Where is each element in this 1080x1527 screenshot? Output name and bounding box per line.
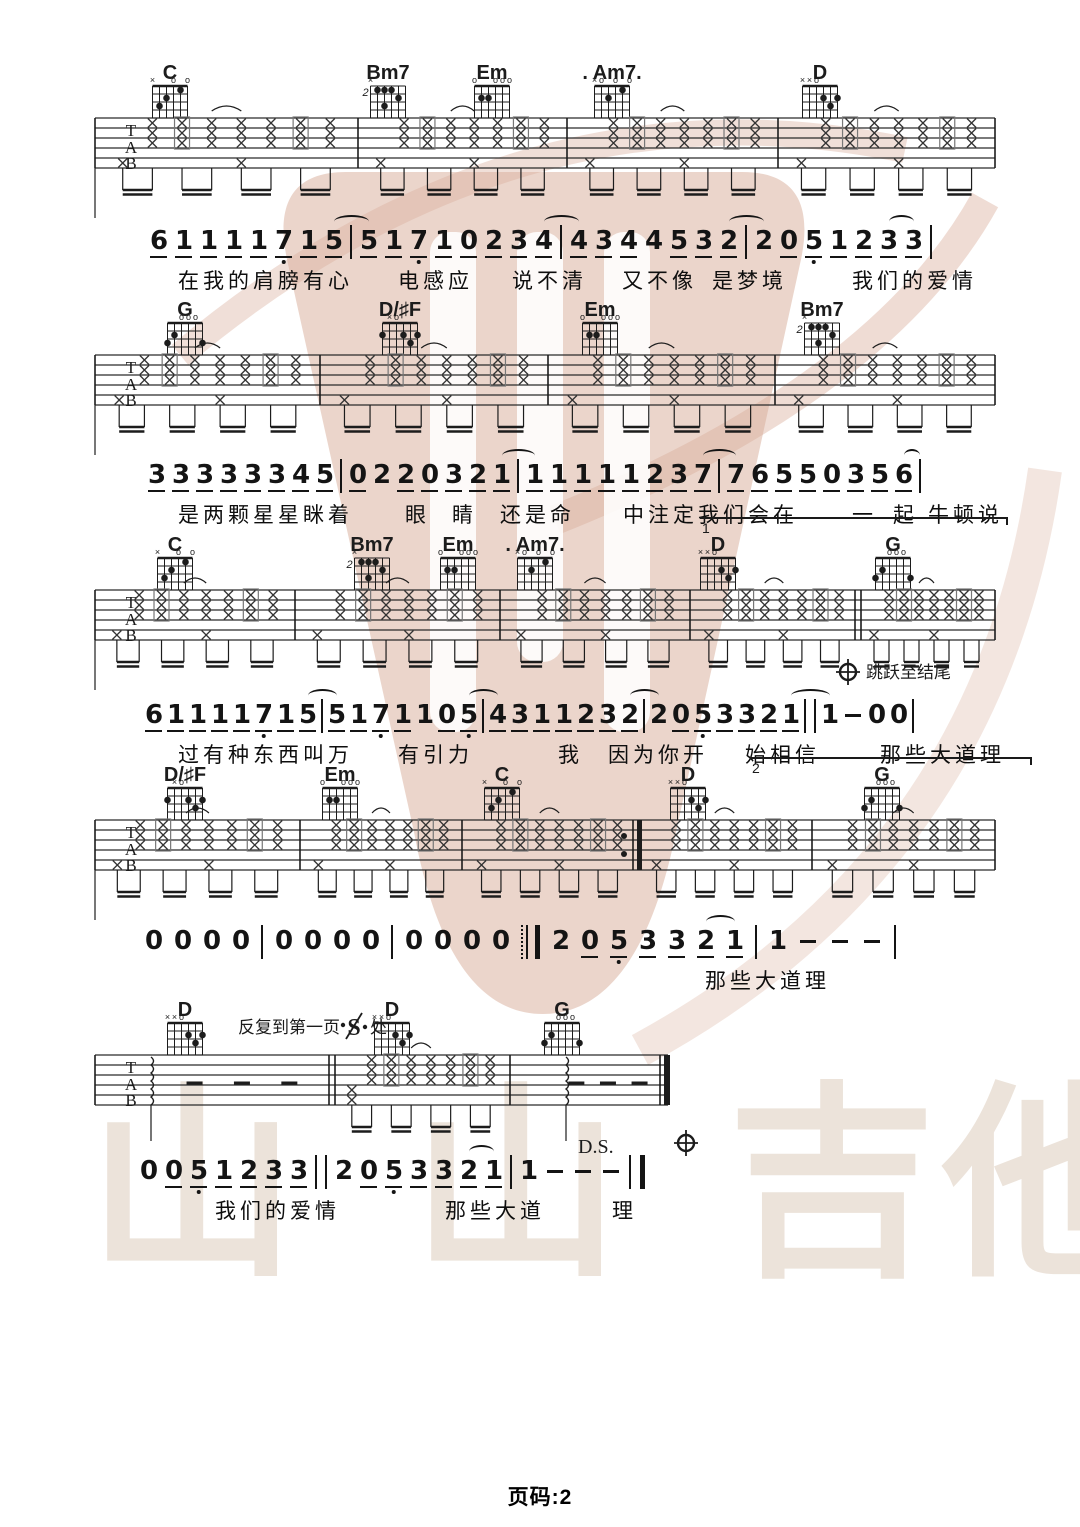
jianpu-barline bbox=[894, 925, 896, 959]
jianpu-note: 1 bbox=[215, 1158, 232, 1188]
jianpu-note: 1 bbox=[300, 228, 317, 258]
svg-text:o: o bbox=[814, 75, 819, 85]
svg-text:o: o bbox=[517, 777, 522, 787]
jianpu-note: 1 bbox=[435, 228, 452, 258]
svg-text:×: × bbox=[172, 1012, 177, 1022]
svg-text:o: o bbox=[438, 547, 443, 557]
jianpu-barline bbox=[745, 225, 747, 259]
svg-text:o: o bbox=[185, 75, 190, 85]
tie-arc bbox=[334, 215, 369, 228]
jianpu-line: 00000000000020533211 bbox=[145, 928, 908, 959]
jianpu-note: 2 bbox=[755, 228, 772, 254]
jianpu-note: 6 bbox=[751, 462, 768, 492]
jianpu-note: 1 bbox=[485, 1158, 502, 1188]
lyrics-segment: 牛顿说 bbox=[928, 499, 1003, 529]
tie-arc bbox=[889, 215, 914, 228]
jianpu-note: 1 bbox=[225, 228, 242, 258]
jianpu-barline bbox=[912, 699, 914, 733]
jianpu-barline bbox=[560, 225, 562, 259]
jianpu-note: 3 bbox=[716, 702, 733, 732]
jianpu-note: 3 bbox=[196, 462, 213, 492]
svg-text:o: o bbox=[348, 777, 353, 787]
jianpu-final-barline bbox=[629, 1155, 645, 1189]
jianpu-dash bbox=[798, 928, 818, 954]
jianpu-note: 7 bbox=[694, 462, 711, 492]
jianpu-note: 2 bbox=[760, 702, 777, 732]
jianpu-barline bbox=[482, 699, 484, 733]
jianpu-note: 0 bbox=[232, 928, 249, 954]
jianpu-note: 0 bbox=[362, 928, 379, 954]
svg-text:o: o bbox=[876, 777, 881, 787]
jianpu-barline bbox=[718, 459, 720, 493]
jianpu-note: 5 bbox=[325, 228, 342, 258]
jianpu-note: 4 bbox=[292, 462, 309, 492]
svg-text:o: o bbox=[522, 547, 527, 557]
svg-text:o: o bbox=[682, 777, 687, 787]
lyrics-segment: 起 bbox=[893, 499, 918, 529]
svg-text:×: × bbox=[150, 75, 155, 85]
jianpu-note: 4 bbox=[489, 702, 506, 732]
jianpu-note: 2 bbox=[650, 702, 667, 728]
jianpu-note: 0 bbox=[868, 702, 885, 728]
jianpu-barline bbox=[340, 459, 342, 493]
svg-text:o: o bbox=[563, 1012, 568, 1022]
tie-arc bbox=[544, 215, 579, 228]
jianpu-note: 5 bbox=[460, 702, 477, 732]
jianpu-note: 0 bbox=[780, 228, 797, 258]
lyrics-segment: 中注定我们会在 bbox=[623, 499, 798, 529]
lyrics-segment: 那些大道理 bbox=[880, 739, 1005, 769]
jianpu-note: 3 bbox=[410, 1158, 427, 1188]
jianpu-note: 0 bbox=[823, 462, 840, 492]
jianpu-note: 3 bbox=[435, 1158, 452, 1188]
lyrics-segment: 是两颗星星眯着 bbox=[178, 499, 353, 529]
jianpu-barline bbox=[930, 225, 932, 259]
lyrics-segment: 我 bbox=[558, 739, 583, 769]
svg-text:o: o bbox=[570, 1012, 575, 1022]
lyrics-segment: 我们的爱情 bbox=[852, 265, 977, 295]
svg-text:o: o bbox=[901, 547, 906, 557]
jianpu-note: 3 bbox=[668, 928, 685, 958]
svg-text:×: × bbox=[705, 547, 710, 557]
jianpu-note: 6 bbox=[150, 228, 167, 258]
jianpu-note: 5 bbox=[360, 228, 377, 258]
jianpu-barline bbox=[261, 925, 263, 959]
tie-arc bbox=[904, 449, 921, 462]
svg-text:B: B bbox=[125, 626, 136, 645]
jianpu-line: 61111715517110543112322053321100 bbox=[145, 702, 919, 733]
jianpu-note: 2 bbox=[240, 1158, 257, 1188]
svg-text:o: o bbox=[320, 777, 325, 787]
svg-text:×: × bbox=[155, 547, 160, 557]
jianpu-note: 5 bbox=[328, 702, 345, 732]
tie-arc bbox=[791, 689, 830, 702]
tie-arc bbox=[308, 689, 337, 702]
jianpu-note: 2 bbox=[621, 702, 638, 732]
jianpu-note: 0 bbox=[492, 928, 509, 954]
jianpu-note: 7 bbox=[372, 702, 389, 732]
jianpu-dash bbox=[545, 1158, 565, 1184]
jianpu-note: 0 bbox=[174, 928, 191, 954]
svg-text:×: × bbox=[352, 547, 357, 557]
jianpu-note: 0 bbox=[438, 702, 455, 732]
svg-text:×: × bbox=[592, 75, 597, 85]
lyrics-segment: 那些大道理 bbox=[705, 965, 830, 995]
jianpu-note: 3 bbox=[148, 462, 165, 492]
jianpu-note: 0 bbox=[581, 928, 598, 958]
jianpu-note: 1 bbox=[493, 462, 510, 492]
jianpu-note: 2 bbox=[485, 228, 502, 258]
lyrics-segment: 眼 bbox=[405, 499, 430, 529]
svg-text:B: B bbox=[125, 391, 136, 410]
sheet-music-page: { "page": { "footer": "页码:2" }, "waterma… bbox=[0, 0, 1080, 1527]
lyrics-segment: 一 bbox=[852, 499, 877, 529]
jianpu-note: 3 bbox=[670, 462, 687, 492]
jianpu-barline bbox=[517, 459, 519, 493]
svg-text:o: o bbox=[627, 75, 632, 85]
jianpu-barline bbox=[391, 925, 393, 959]
svg-text:o: o bbox=[176, 547, 181, 557]
page-number: 页码:2 bbox=[0, 1481, 1080, 1511]
svg-text:o: o bbox=[608, 312, 613, 322]
jianpu-note: 3 bbox=[510, 228, 527, 258]
jianpu-note: 2 bbox=[335, 1158, 352, 1184]
svg-text:×: × bbox=[698, 547, 703, 557]
jianpu-note: 3 bbox=[905, 228, 922, 258]
jianpu-note: 1 bbox=[598, 462, 615, 492]
tie-arc bbox=[630, 689, 659, 702]
svg-text:×: × bbox=[802, 312, 807, 322]
jianpu-note: 1 bbox=[555, 702, 572, 732]
tie-arc bbox=[706, 915, 735, 928]
svg-text:×: × bbox=[165, 1012, 170, 1022]
jianpu-line: 611117155171023443445322051233 bbox=[150, 228, 940, 259]
svg-text:o: o bbox=[883, 777, 888, 787]
lyrics-segment: 那些大道 bbox=[445, 1195, 545, 1225]
jianpu-barline bbox=[643, 699, 645, 733]
svg-text:o: o bbox=[500, 75, 505, 85]
jianpu-note: 1 bbox=[526, 462, 543, 492]
jianpu-note: 0 bbox=[890, 702, 907, 728]
svg-text:反复到第一页: 反复到第一页 bbox=[238, 1018, 340, 1037]
lyrics-segment: 因为你开 bbox=[608, 739, 708, 769]
svg-text:o: o bbox=[193, 312, 198, 322]
lyrics-segment: 是梦境 bbox=[712, 265, 787, 295]
svg-text:o: o bbox=[179, 312, 184, 322]
lyrics-segment: 理 bbox=[612, 1195, 637, 1225]
svg-text:×: × bbox=[675, 777, 680, 787]
svg-text:o: o bbox=[894, 547, 899, 557]
svg-text:o: o bbox=[615, 312, 620, 322]
jianpu-note: 0 bbox=[421, 462, 438, 492]
jianpu-note: 5 bbox=[610, 928, 627, 958]
jianpu-note: 1 bbox=[830, 228, 847, 258]
lyrics-segment: 还是命 bbox=[500, 499, 575, 529]
jianpu-dash bbox=[573, 1158, 593, 1184]
svg-text:o: o bbox=[466, 547, 471, 557]
jianpu-note: 2 bbox=[646, 462, 663, 492]
tie-arc bbox=[469, 689, 498, 702]
jianpu-note: 3 bbox=[599, 702, 616, 732]
svg-text:o: o bbox=[341, 777, 346, 787]
svg-text:o: o bbox=[580, 312, 585, 322]
jianpu-note: 0 bbox=[360, 1158, 377, 1188]
jianpu-dash bbox=[601, 1158, 621, 1184]
jianpu-note: 1 bbox=[726, 928, 743, 958]
jianpu-note: 1 bbox=[416, 702, 433, 728]
jianpu-note: 1 bbox=[350, 702, 367, 732]
jianpu-note: 3 bbox=[595, 228, 612, 258]
jianpu-note: 5 bbox=[190, 1158, 207, 1188]
jianpu-note: 1 bbox=[533, 702, 550, 732]
svg-text:×: × bbox=[515, 547, 520, 557]
svg-text:o: o bbox=[712, 547, 717, 557]
jianpu-note: 0 bbox=[140, 1158, 157, 1184]
jianpu-note: 6 bbox=[145, 702, 162, 732]
jianpu-note: 5 bbox=[694, 702, 711, 732]
jianpu-note: 5 bbox=[316, 462, 333, 492]
svg-text:×: × bbox=[368, 75, 373, 85]
jianpu-dash bbox=[843, 702, 863, 728]
svg-text:o: o bbox=[179, 777, 184, 787]
jianpu-note: 4 bbox=[570, 228, 587, 258]
svg-text:o: o bbox=[890, 777, 895, 787]
svg-text:D.S.: D.S. bbox=[578, 1136, 614, 1158]
tie-arc bbox=[502, 449, 535, 462]
jianpu-note: 5 bbox=[799, 462, 816, 492]
jianpu-note: 3 bbox=[268, 462, 285, 492]
svg-text:o: o bbox=[550, 547, 555, 557]
jianpu-note: 7 bbox=[410, 228, 427, 258]
jianpu-note: 5 bbox=[871, 462, 888, 492]
svg-text:×: × bbox=[800, 75, 805, 85]
lyrics-segment: 又不像 bbox=[622, 265, 697, 295]
jianpu-note: 2 bbox=[373, 462, 390, 488]
jianpu-note: 0 bbox=[165, 1158, 182, 1188]
jianpu-note: 0 bbox=[275, 928, 292, 954]
jianpu-note: 1 bbox=[175, 228, 192, 258]
svg-text:跳跃至结尾: 跳跃至结尾 bbox=[866, 663, 951, 682]
jianpu-note: 3 bbox=[639, 928, 656, 958]
svg-text:o: o bbox=[394, 312, 399, 322]
jianpu-repeat-barline bbox=[521, 925, 540, 959]
jianpu-note: 3 bbox=[220, 462, 237, 492]
jianpu-note: 1 bbox=[200, 228, 217, 258]
svg-text:o: o bbox=[503, 777, 508, 787]
jianpu-note: 1 bbox=[550, 462, 567, 492]
svg-text:×: × bbox=[807, 75, 812, 85]
jianpu-note: 0 bbox=[460, 228, 477, 258]
jianpu-note: 0 bbox=[405, 928, 422, 954]
jianpu-note: 0 bbox=[145, 928, 162, 954]
jianpu-note: 1 bbox=[250, 228, 267, 258]
jianpu-note: 5 bbox=[385, 1158, 402, 1188]
jianpu-note: 2 bbox=[460, 1158, 477, 1188]
jianpu-note: 0 bbox=[304, 928, 321, 954]
jianpu-note: 2 bbox=[720, 228, 737, 258]
jianpu-note: 1 bbox=[821, 702, 838, 728]
jianpu-note: 0 bbox=[333, 928, 350, 954]
jianpu-note: 5 bbox=[775, 462, 792, 492]
svg-text:B: B bbox=[125, 1091, 136, 1110]
jianpu-note: 3 bbox=[244, 462, 261, 492]
jianpu-note: 0 bbox=[434, 928, 451, 954]
jianpu-note: 2 bbox=[397, 462, 414, 492]
jianpu-barline bbox=[510, 1155, 512, 1189]
svg-text:B: B bbox=[125, 154, 136, 173]
jianpu-note: 4 bbox=[535, 228, 552, 258]
svg-text:×: × bbox=[668, 777, 673, 787]
jianpu-note: 7 bbox=[255, 702, 272, 732]
jianpu-note: 3 bbox=[290, 1158, 307, 1188]
jianpu-note: 3 bbox=[511, 702, 528, 732]
jianpu-note: 3 bbox=[695, 228, 712, 258]
jianpu-barline bbox=[350, 225, 352, 259]
jianpu-note: 5 bbox=[805, 228, 822, 258]
jianpu-note: 5 bbox=[670, 228, 687, 258]
jianpu-note: 3 bbox=[445, 462, 462, 492]
jianpu-dash bbox=[862, 928, 882, 954]
svg-text:处: 处 bbox=[370, 1018, 387, 1037]
svg-text:o: o bbox=[493, 75, 498, 85]
lyrics-segment: 过有种东西叫万 bbox=[178, 739, 353, 769]
svg-text:2: 2 bbox=[346, 559, 353, 571]
lyrics-segment: 睛 bbox=[452, 499, 477, 529]
jianpu-note: 2 bbox=[552, 928, 569, 954]
svg-text:o: o bbox=[507, 75, 512, 85]
svg-text:D/♯F: D/♯F bbox=[379, 299, 421, 321]
jianpu-note: 1 bbox=[520, 1158, 537, 1184]
jianpu-note: 3 bbox=[880, 228, 897, 258]
svg-text:2: 2 bbox=[796, 324, 803, 336]
tie-arc bbox=[703, 449, 736, 462]
svg-text:o: o bbox=[179, 1012, 184, 1022]
volta-bracket: 2 bbox=[750, 757, 1032, 759]
lyrics-segment: 在我的肩膀有心 bbox=[178, 265, 353, 295]
jianpu-note: 1 bbox=[211, 702, 228, 732]
jianpu-line: 005123320533211 bbox=[140, 1158, 653, 1189]
volta-bracket: 1 bbox=[700, 517, 1008, 519]
svg-text:2: 2 bbox=[362, 87, 369, 99]
jianpu-barline bbox=[755, 925, 757, 959]
svg-text:×: × bbox=[172, 777, 177, 787]
lyrics-segment: 有引力 bbox=[398, 739, 473, 769]
jianpu-note: 3 bbox=[172, 462, 189, 492]
svg-text:o: o bbox=[190, 547, 195, 557]
jianpu-dash bbox=[830, 928, 850, 954]
jianpu-barline bbox=[919, 459, 921, 493]
jianpu-barline bbox=[321, 699, 323, 733]
jianpu-note: 0 bbox=[349, 462, 366, 492]
svg-text:o: o bbox=[355, 777, 360, 787]
svg-text:o: o bbox=[613, 75, 618, 85]
jianpu-note: 7 bbox=[275, 228, 292, 258]
jianpu-note: 2 bbox=[697, 928, 714, 958]
svg-text:o: o bbox=[601, 312, 606, 322]
tie-arc bbox=[469, 1145, 494, 1158]
svg-text:o: o bbox=[887, 547, 892, 557]
lyrics-segment: 说不清 bbox=[512, 265, 587, 295]
jianpu-double-barline bbox=[804, 699, 816, 733]
jianpu-note: 2 bbox=[855, 228, 872, 258]
svg-text:×: × bbox=[387, 312, 392, 322]
svg-text:×: × bbox=[482, 777, 487, 787]
jianpu-note: 0 bbox=[463, 928, 480, 954]
jianpu-note: 4 bbox=[620, 228, 637, 258]
svg-text:o: o bbox=[599, 75, 604, 85]
jianpu-note: 1 bbox=[233, 702, 250, 732]
jianpu-note: 0 bbox=[672, 702, 689, 732]
jianpu-note: 1 bbox=[574, 462, 591, 492]
svg-text:o: o bbox=[472, 75, 477, 85]
lyrics-segment: 电感应 bbox=[398, 265, 473, 295]
svg-text:o: o bbox=[473, 547, 478, 557]
jianpu-note: 3 bbox=[738, 702, 755, 732]
jianpu-note: 1 bbox=[394, 702, 411, 732]
svg-text:o: o bbox=[459, 547, 464, 557]
jianpu-note: 6 bbox=[895, 462, 912, 492]
jianpu-double-barline bbox=[315, 1155, 327, 1189]
jianpu-note: 7 bbox=[727, 462, 744, 492]
jianpu-note: 2 bbox=[577, 702, 594, 732]
jianpu-note: 1 bbox=[167, 702, 184, 732]
jianpu-note: 1 bbox=[622, 462, 639, 492]
jianpu-note: 1 bbox=[277, 702, 294, 732]
jianpu-note: 3 bbox=[847, 462, 864, 492]
svg-text:o: o bbox=[186, 312, 191, 322]
jianpu-note: 4 bbox=[645, 228, 662, 254]
svg-text:o: o bbox=[536, 547, 541, 557]
jianpu-note: 5 bbox=[299, 702, 316, 732]
lyrics-segment: 我们的爱情 bbox=[215, 1195, 340, 1225]
jianpu-note: 3 bbox=[265, 1158, 282, 1188]
tie-arc bbox=[729, 215, 764, 228]
jianpu-note: 1 bbox=[189, 702, 206, 732]
jianpu-note: 0 bbox=[203, 928, 220, 954]
jianpu-note: 1 bbox=[385, 228, 402, 258]
jianpu-note: 1 bbox=[769, 928, 786, 954]
svg-text:o: o bbox=[171, 75, 176, 85]
jianpu-note: 2 bbox=[469, 462, 486, 492]
jianpu-note: 1 bbox=[782, 702, 799, 732]
svg-text:o: o bbox=[556, 1012, 561, 1022]
svg-text:B: B bbox=[125, 856, 136, 875]
jianpu-line: 3333334502203211111123776550356 bbox=[148, 462, 928, 493]
